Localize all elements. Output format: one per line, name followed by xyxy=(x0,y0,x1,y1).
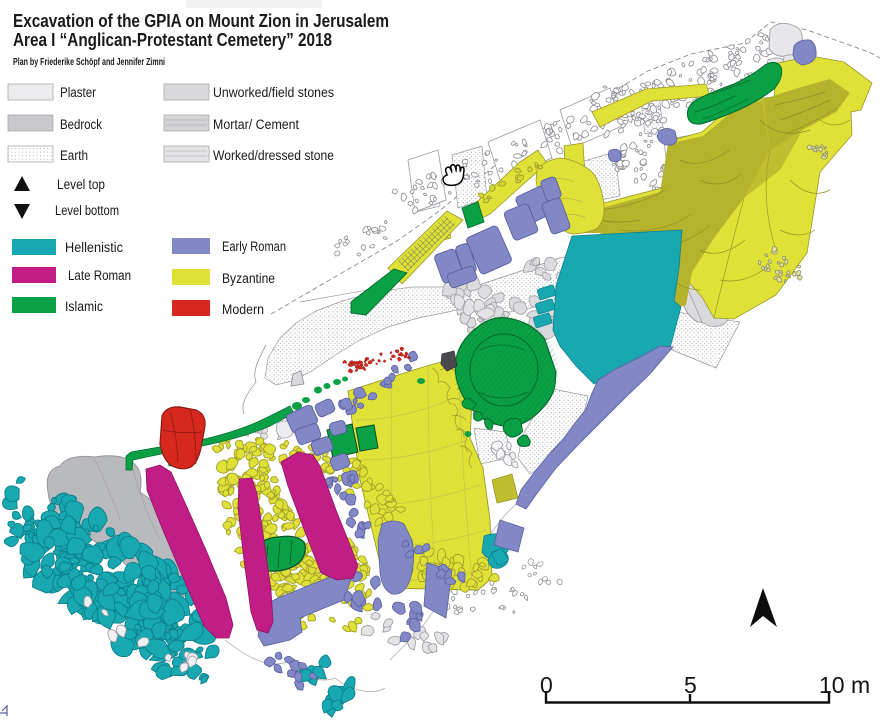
svg-text:Byzantine: Byzantine xyxy=(222,271,275,286)
svg-text:Modern: Modern xyxy=(222,302,264,317)
svg-text:Plaster: Plaster xyxy=(60,85,96,100)
svg-text:Worked/dressed stone: Worked/dressed stone xyxy=(213,148,334,163)
svg-text:Level top: Level top xyxy=(57,177,105,192)
svg-text:Level bottom: Level bottom xyxy=(55,203,119,218)
svg-text:Late Roman: Late Roman xyxy=(68,268,131,283)
svg-text:Early Roman: Early Roman xyxy=(222,239,286,254)
svg-text:Unworked/field stones: Unworked/field stones xyxy=(213,85,334,100)
svg-text:Islamic: Islamic xyxy=(65,299,103,314)
svg-text:Hellenistic: Hellenistic xyxy=(65,240,123,255)
svg-text:0: 0 xyxy=(540,672,553,698)
svg-text:Mortar/ Cement: Mortar/ Cement xyxy=(213,117,299,132)
svg-text:Bedrock: Bedrock xyxy=(60,117,102,132)
svg-text:5: 5 xyxy=(684,672,697,698)
svg-text:Earth: Earth xyxy=(60,148,88,163)
svg-text:10 m: 10 m xyxy=(819,672,870,698)
svg-text:Area I “Anglican-Protestant Ce: Area I “Anglican-Protestant Cemetery” 20… xyxy=(13,30,332,50)
svg-text:Plan by Friederike Schöpf and: Plan by Friederike Schöpf and Jennifer Z… xyxy=(13,56,165,68)
svg-text:Excavation of the GPIA on Moun: Excavation of the GPIA on Mount Zion in … xyxy=(13,11,389,31)
